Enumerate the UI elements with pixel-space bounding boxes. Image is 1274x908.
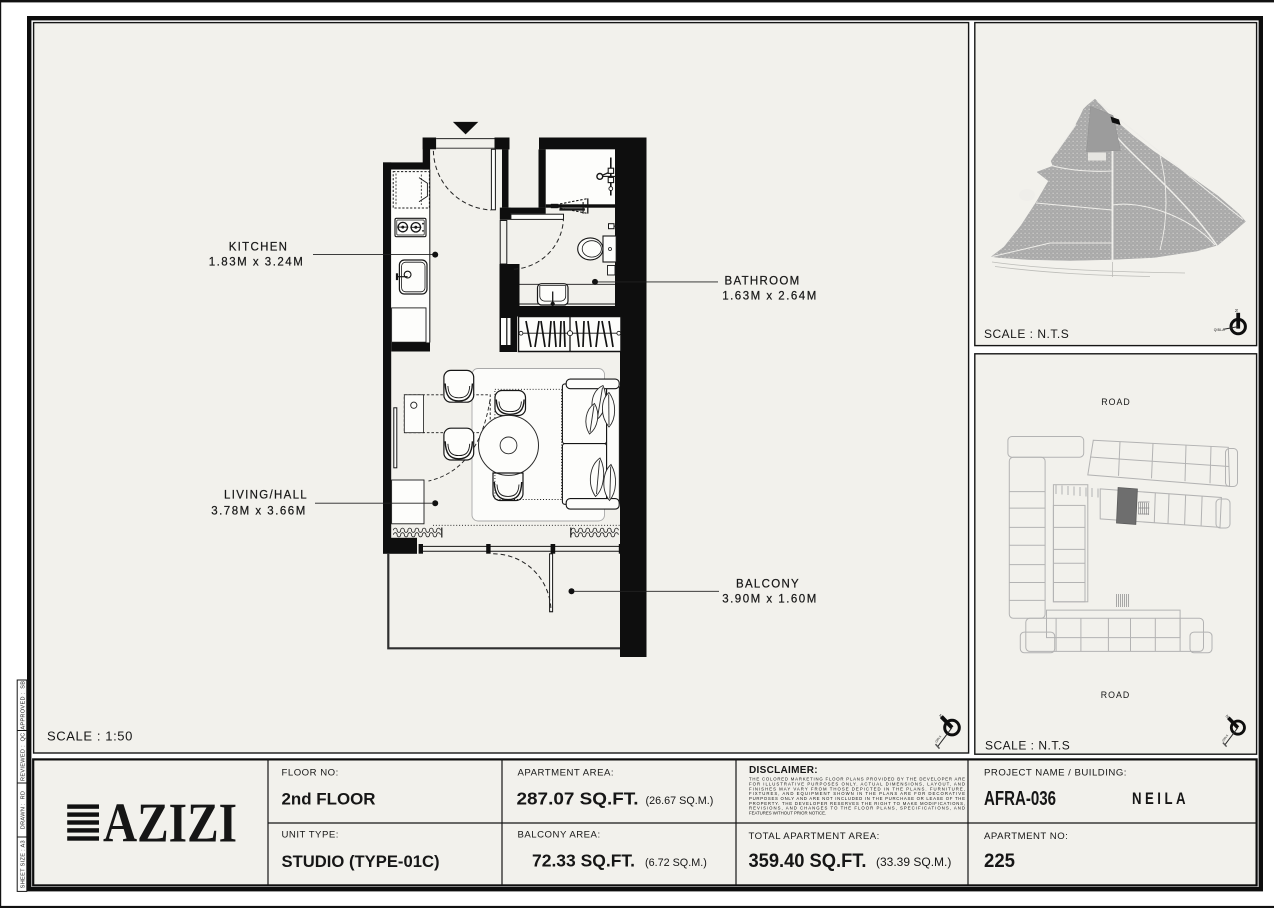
svg-text:225: 225 [984,851,1015,872]
svg-text:SHEET SIZE : A3: SHEET SIZE : A3 [20,840,26,888]
svg-text:(26.67 SQ.M.): (26.67 SQ.M.) [646,795,714,807]
svg-text:BATHROOM: BATHROOM [725,276,801,288]
svg-text:2nd FLOOR: 2nd FLOOR [282,790,376,809]
svg-text:(33.39 SQ.M.): (33.39 SQ.M.) [876,855,951,869]
svg-text:FEATURES WITHOUT PRIOR NOTICE.: FEATURES WITHOUT PRIOR NOTICE. [749,811,826,816]
svg-text:BALCONY AREA:: BALCONY AREA: [518,830,601,841]
svg-text:APARTMENT NO:: APARTMENT NO: [984,831,1068,842]
svg-text:KITCHEN: KITCHEN [229,242,289,254]
svg-text:REVIEWED : QC: REVIEWED : QC [20,732,26,781]
svg-text:287.07 SQ.FT.: 287.07 SQ.FT. [517,789,639,809]
svg-text:AZIZI: AZIZI [103,792,237,854]
svg-text:PROJECT NAME / BUILDING:: PROJECT NAME / BUILDING: [984,768,1127,779]
svg-text:BALCONY: BALCONY [736,579,800,591]
svg-text:359.40 SQ.FT.: 359.40 SQ.FT. [749,851,867,872]
svg-text:APARTMENT AREA:: APARTMENT AREA: [518,768,615,779]
svg-text:1.83M x 3.24M: 1.83M x 3.24M [209,257,305,269]
svg-text:(6.72 SQ.M.): (6.72 SQ.M.) [645,857,707,869]
svg-text:72.33 SQ.FT.: 72.33 SQ.FT. [532,850,635,870]
svg-text:3.78M x 3.66M: 3.78M x 3.66M [211,506,307,518]
svg-text:QIBLA: QIBLA [1214,328,1226,332]
svg-text:SCALE : N.T.S: SCALE : N.T.S [984,327,1069,341]
svg-text:TOTAL APARTMENT AREA:: TOTAL APARTMENT AREA: [749,831,880,842]
svg-text:DISCLAIMER:: DISCLAIMER: [749,765,818,776]
svg-text:N: N [1234,309,1239,312]
svg-text:APPROVED : SB: APPROVED : SB [20,681,26,730]
svg-text:3.90M x 1.60M: 3.90M x 1.60M [722,594,818,606]
svg-text:LIVING/HALL: LIVING/HALL [224,490,308,502]
svg-text:UNIT TYPE:: UNIT TYPE: [282,830,339,841]
svg-text:SCALE : 1:50: SCALE : 1:50 [47,729,133,744]
svg-text:SCALE : N.T.S: SCALE : N.T.S [985,739,1070,753]
svg-text:STUDIO (TYPE-01C): STUDIO (TYPE-01C) [282,852,440,871]
svg-text:ROAD: ROAD [1101,690,1130,700]
svg-text:FLOOR NO:: FLOOR NO: [282,768,339,779]
svg-text:ROAD: ROAD [1101,397,1130,407]
svg-text:AFRA-036: AFRA-036 [984,788,1056,810]
svg-text:NEILA: NEILA [1132,789,1189,808]
svg-text:1.63M x 2.64M: 1.63M x 2.64M [722,291,818,303]
svg-text:DRAWN : RD: DRAWN : RD [20,791,26,830]
